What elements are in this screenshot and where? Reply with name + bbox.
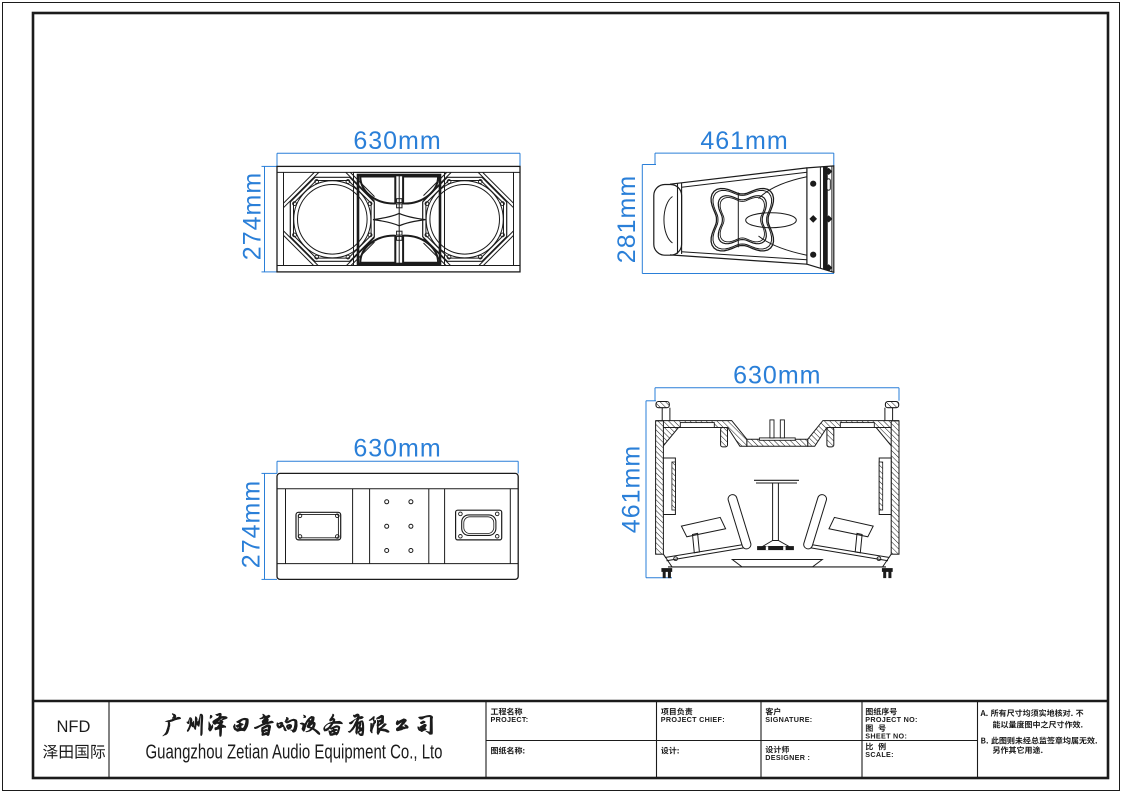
svg-text:274mm: 274mm [239, 172, 267, 260]
svg-text:PROJECT NO:: PROJECT NO: [865, 715, 917, 724]
svg-text:630mm: 630mm [353, 435, 441, 463]
svg-text:281mm: 281mm [613, 175, 641, 263]
svg-text:SIGNATURE:: SIGNATURE: [765, 715, 812, 724]
svg-text:PROJECT:: PROJECT: [491, 715, 529, 724]
svg-text:SCALE:: SCALE: [865, 750, 894, 759]
svg-text:Guangzhou Zetian Audio Equipme: Guangzhou Zetian Audio Equipment Co., Lt… [146, 742, 443, 764]
svg-text:PROJECT CHIEF:: PROJECT CHIEF: [661, 715, 725, 724]
svg-text:630mm: 630mm [733, 362, 821, 390]
svg-text:274mm: 274mm [238, 480, 266, 568]
svg-text:DESIGNER :: DESIGNER : [765, 753, 810, 762]
svg-text:NFD: NFD [57, 718, 91, 736]
svg-text:461mm: 461mm [700, 127, 788, 155]
svg-text:SHEET NO:: SHEET NO: [865, 731, 907, 740]
svg-text:630mm: 630mm [353, 127, 441, 155]
svg-text:461mm: 461mm [618, 445, 646, 533]
